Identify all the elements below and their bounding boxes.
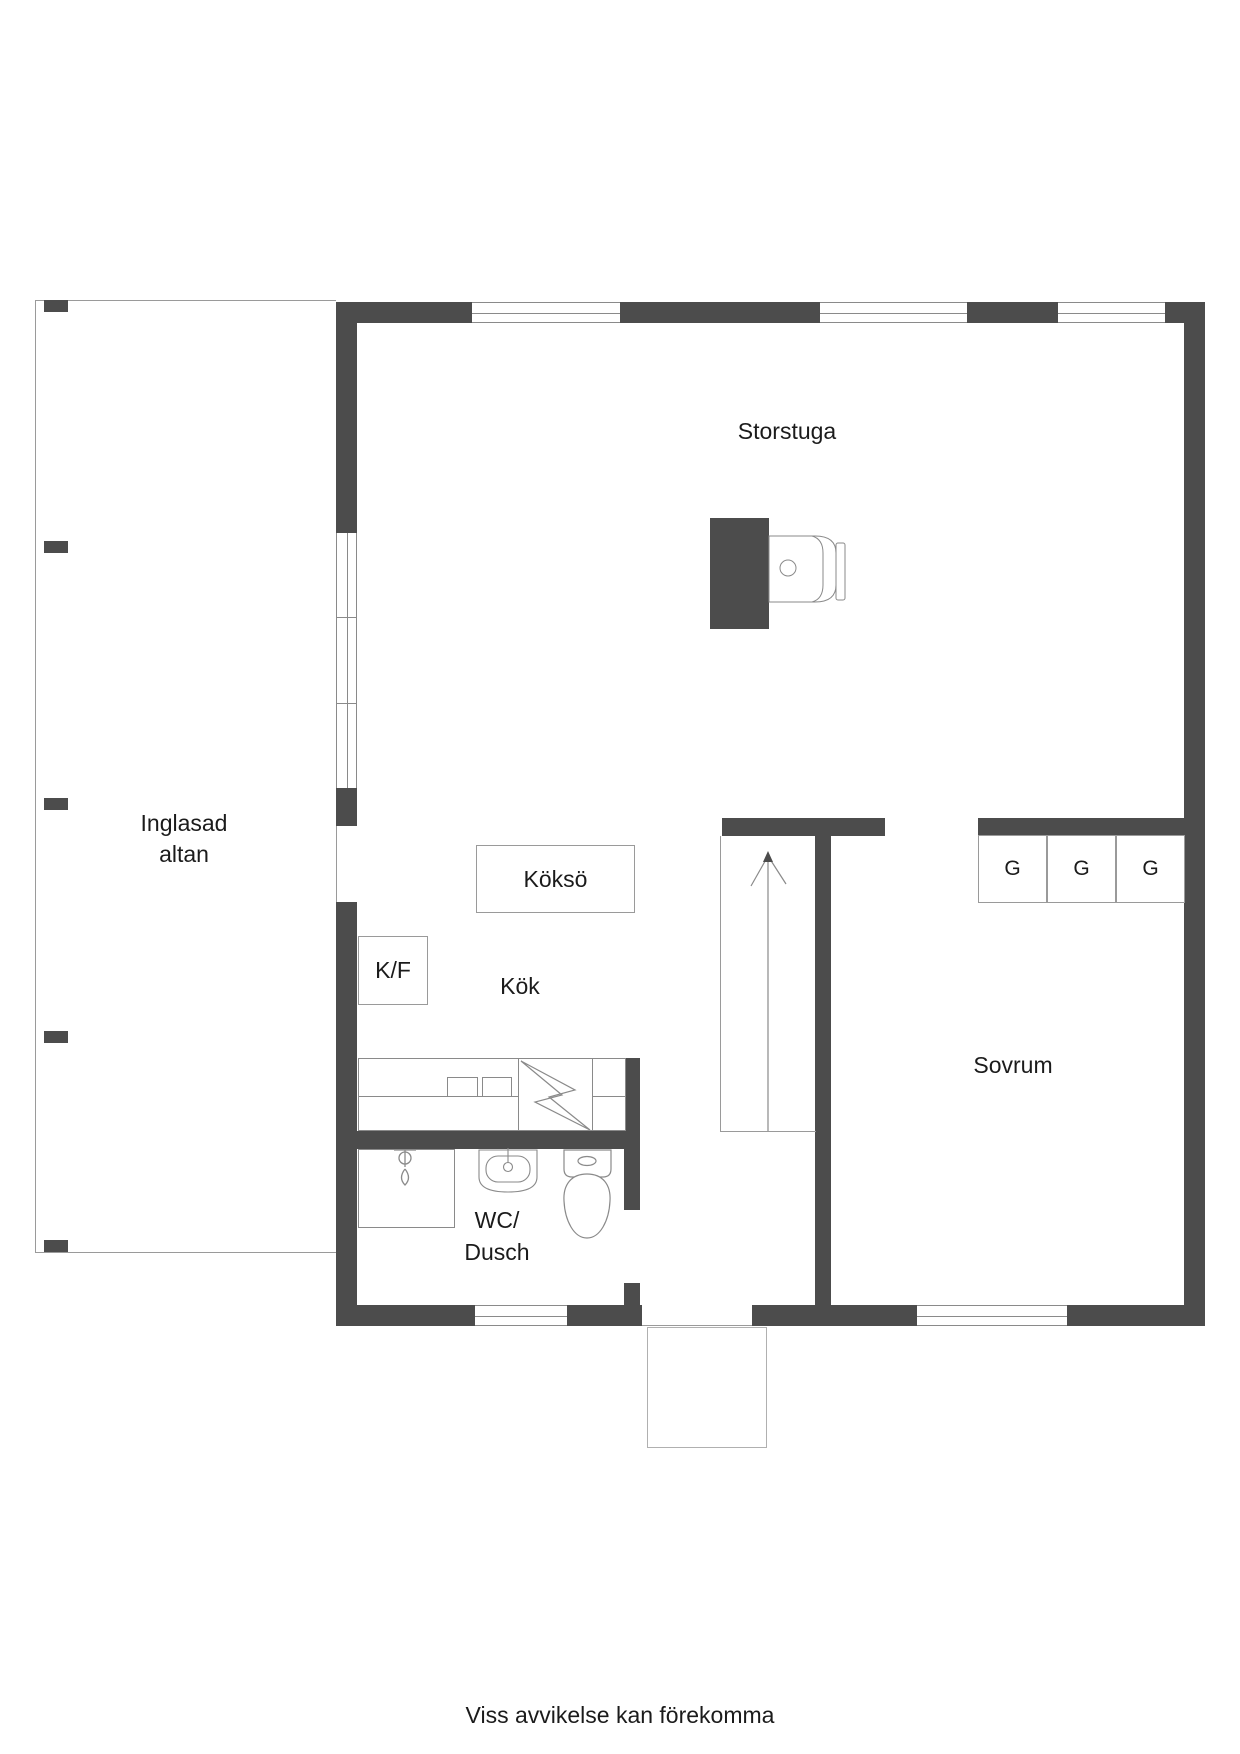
stairs-arrow-icon (751, 851, 786, 1131)
shower-tap-icon (394, 1150, 416, 1185)
sink-icon (479, 1148, 537, 1192)
disclaimer-text: Viss avvikelse kan förekomma (0, 1702, 1240, 1729)
lightning-icon (521, 1061, 590, 1130)
stove-icon (769, 536, 845, 602)
floor-plan: Köksö K/F G G G Storstuga Inglasad altan… (0, 0, 1240, 1754)
toilet-icon (564, 1150, 611, 1238)
fixtures-layer (0, 0, 1240, 1754)
